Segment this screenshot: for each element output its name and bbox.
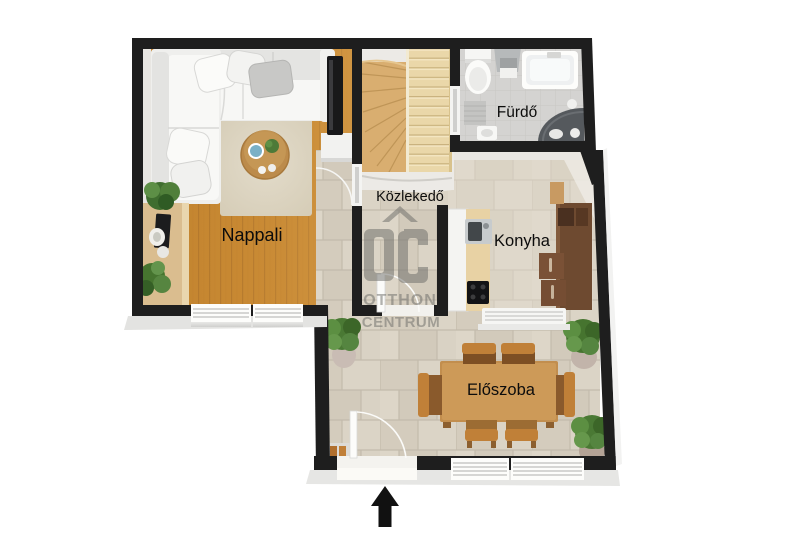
svg-text:CENTRUM: CENTRUM [362, 314, 441, 331]
svg-text:Előszoba: Előszoba [467, 381, 536, 399]
svg-text:Közlekedő: Közlekedő [376, 189, 444, 205]
svg-text:Konyha: Konyha [494, 232, 551, 250]
svg-text:OTTHON: OTTHON [363, 292, 437, 309]
svg-text:Nappali: Nappali [221, 225, 282, 245]
svg-text:Fürdő: Fürdő [497, 104, 538, 121]
